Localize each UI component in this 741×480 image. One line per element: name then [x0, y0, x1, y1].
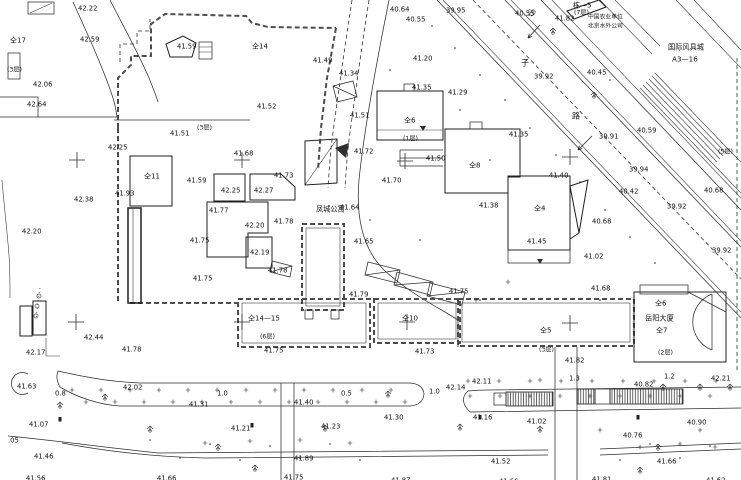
cross-street-east [555, 347, 577, 480]
boundary-point-icon [35, 304, 39, 308]
survey-grid-cross [562, 149, 578, 165]
elevation-label: 39.92 [534, 73, 553, 81]
building-number-label: 仝8 [469, 161, 480, 170]
road-tick [559, 379, 563, 383]
elevation-label: 40.59 [637, 127, 656, 135]
elevation-label: 42.27 [254, 187, 273, 195]
road-tick [466, 379, 470, 383]
elevation-label: 40.55 [406, 16, 425, 24]
parallelogram-building [305, 139, 337, 185]
boundary-point-icon [37, 294, 41, 298]
elevation-label: 41.78 [122, 346, 141, 354]
survey-grid-cross [562, 315, 578, 331]
width-label: 1.0 [429, 388, 440, 396]
road-tick [683, 379, 687, 383]
utility-marker-icon [59, 417, 62, 422]
elevation-label: 42.19 [250, 249, 269, 257]
elevation-label: 40.76 [623, 432, 642, 440]
elevation-label: 42.20 [245, 222, 264, 230]
flow-arrow-icon [528, 25, 540, 38]
road-tick [348, 441, 352, 445]
survey-dot [479, 74, 481, 76]
survey-grid-cross [397, 153, 413, 169]
floor-count-label: (6层) [260, 334, 275, 341]
sidewalk-east-bottom [463, 391, 741, 412]
survey-dot [431, 25, 433, 27]
elevation-label: 41.59 [187, 177, 206, 185]
survey-dot [555, 154, 557, 156]
building-number-label: 仝10 [402, 314, 418, 323]
building-number-label: 仝6 [404, 116, 416, 125]
building-number-label: 仝7 [656, 326, 667, 335]
road-tick [298, 438, 302, 442]
elevation-label: 41.45 [527, 238, 546, 246]
elevation-label: 41.66 [657, 458, 676, 466]
elevation-label: 40.42 [619, 188, 638, 196]
elevation-label: 41.78 [268, 267, 287, 275]
tree-icon [550, 28, 556, 35]
small-building-outline [20, 306, 32, 336]
elevation-label: 41.59 [177, 43, 196, 51]
road-tick [403, 400, 407, 404]
elevation-label: 41.75 [190, 237, 209, 245]
road-tick [498, 394, 502, 398]
elevation-label: 40.68 [592, 218, 611, 226]
place-name-label: 国际风具城 [668, 43, 704, 52]
elevation-label: 41.87 [391, 477, 410, 480]
elevation-label: 42.25 [108, 144, 127, 152]
floor-count-label: (2层) [658, 350, 673, 357]
survey-dot [269, 445, 271, 447]
place-name-label: A3—16 [672, 55, 698, 64]
road-tick [113, 400, 117, 404]
survey-dot [599, 299, 601, 301]
elevation-label: 40.68 [704, 187, 723, 195]
elevation-label: 41.52 [491, 458, 510, 466]
elevation-label: 41.40 [549, 172, 568, 180]
elevation-label: 42.25 [221, 187, 240, 195]
main-compound-building [302, 224, 344, 319]
elevation-label: 42.02 [123, 384, 142, 392]
place-name-label: 凤城公寓 [316, 205, 345, 214]
elevation-label: 42.17 [26, 349, 45, 357]
survey-dot [609, 79, 611, 81]
building-14-15-outline [238, 299, 370, 347]
road-tick [621, 379, 625, 383]
road-tick [497, 379, 501, 383]
ladder-symbol [199, 42, 212, 59]
road-tick [558, 394, 562, 398]
elevation-label: 41.35 [509, 131, 528, 139]
elevation-label: 41.50 [426, 155, 445, 163]
elevation-label: 41.40 [294, 399, 313, 407]
floor-count-label: (3层) [7, 67, 22, 74]
elevation-label: 41.77 [209, 207, 228, 215]
elevation-label: 42.11 [472, 378, 491, 386]
elevation-label: 41.56 [26, 475, 45, 480]
road-tick [638, 445, 642, 449]
tree-icon [385, 391, 391, 398]
elevation-label: 41.29 [448, 89, 467, 97]
survey-dot [529, 127, 531, 129]
cad-survey-map: 42.2242.5942.0642.6442.2542.3842.2041.93… [0, 0, 741, 480]
survey-dot [459, 109, 461, 111]
elevation-label: 41.82 [565, 357, 584, 365]
survey-dot [504, 99, 506, 101]
road-tick [248, 439, 252, 443]
building-number-label: 栋—5 [573, 1, 591, 10]
survey-dot [209, 443, 211, 445]
floor-count-label: (3层) [539, 347, 554, 354]
floor-count-label: (5层) [718, 149, 733, 156]
left-edge-structures [11, 288, 60, 395]
road-tick [698, 428, 702, 432]
road-tick [468, 394, 472, 398]
elevation-label: 40.82 [634, 381, 653, 389]
elevation-label: 41.75 [449, 288, 468, 296]
tree-icon [457, 424, 463, 431]
road-tick [345, 400, 349, 404]
road-name-char: 沙 [528, 9, 536, 18]
tree-icon [57, 402, 63, 409]
west-wing-outline [128, 208, 141, 303]
elevation-label: 39.91 [599, 133, 618, 141]
road-tick [389, 388, 393, 392]
elevation-label: 42.64 [27, 101, 46, 109]
road-tick [258, 400, 262, 404]
utility-marker-icon [637, 415, 640, 420]
parcel-lines-northwest [0, 0, 158, 298]
elevation-label: 41.65 [354, 238, 373, 246]
elevation-label: 41.23 [321, 423, 340, 431]
elevation-label: 40.64 [390, 6, 409, 14]
width-label: 0.5 [341, 390, 352, 398]
road-tick [157, 388, 161, 392]
elevation-label: 39.94 [629, 166, 648, 174]
survey-dot [709, 445, 711, 447]
elevation-label: 42.22 [78, 5, 97, 13]
building-7-yueyang-tower [634, 285, 726, 362]
survey-dot [179, 457, 181, 459]
elevation-label: 41.75 [193, 275, 212, 283]
building-8-outline [445, 129, 520, 193]
road-tick [316, 400, 320, 404]
utility-marker-icon [251, 423, 254, 428]
elevation-label: 40.90 [687, 419, 706, 427]
road-tick [708, 394, 712, 398]
survey-dot [579, 181, 581, 183]
elevation-label: 41.79 [349, 291, 368, 299]
buildings-south-row [238, 285, 726, 362]
place-name-label: 北京水外公司 [588, 22, 623, 30]
elevation-label: 41.68 [234, 150, 253, 158]
elevation-label: 42.38 [74, 196, 93, 204]
elevation-label: 41.49 [313, 57, 332, 65]
elevation-label: 40.45 [587, 69, 606, 77]
map-symbols [34, 25, 733, 474]
survey-dot [359, 459, 361, 461]
elevation-label: 41.52 [257, 103, 276, 111]
road-tick [99, 388, 103, 392]
elevation-label: 41.16 [473, 414, 492, 422]
elevation-label: 42.06 [33, 81, 52, 89]
road-tick [203, 441, 207, 445]
survey-dot [604, 209, 606, 211]
survey-dot [454, 47, 456, 49]
elevation-label: 41.78 [274, 218, 293, 226]
building-6-outline [377, 91, 443, 140]
elevation-label: 42.59 [80, 36, 99, 44]
elevation-label: 41.70 [382, 177, 401, 185]
road-tick [713, 445, 717, 449]
width-label: 1.2 [664, 373, 675, 381]
survey-dot [149, 439, 151, 441]
road-tick [142, 400, 146, 404]
building-number-label: 仝5 [540, 326, 551, 335]
elevation-label: 41.73 [274, 172, 293, 180]
elevation-label: 41.72 [354, 148, 373, 156]
tree-icon [102, 394, 108, 401]
road-tick [229, 400, 233, 404]
tree-icon [655, 444, 661, 451]
building-11-outline [130, 156, 172, 206]
building-number-label: 仝11 [144, 172, 160, 181]
elevation-label: 41.93 [115, 190, 134, 198]
elevation-label: 41.31 [189, 401, 208, 409]
elevation-label: 41.02 [527, 418, 546, 426]
elevation-label: 39.92 [712, 247, 731, 255]
sidewalk-island-west [57, 371, 424, 406]
elevation-label: 42.21 [711, 375, 730, 383]
survey-dot [679, 457, 681, 459]
elevation-label: 41.38 [479, 202, 498, 210]
elevation-label: 41.75 [284, 474, 303, 480]
survey-dot [619, 459, 621, 461]
flow-arrow-icon [578, 136, 592, 150]
curb-line-east [600, 443, 741, 455]
elevation-label: 41.35 [412, 84, 431, 92]
road-tick [287, 400, 291, 404]
road-tick [70, 388, 74, 392]
tree-icon [637, 467, 643, 474]
tree-icon [537, 426, 543, 433]
road-name-char: 路 [572, 111, 580, 121]
road-tick [331, 388, 335, 392]
tree-icon [252, 465, 258, 472]
survey-dot [629, 236, 631, 238]
survey-grid-cross [69, 152, 85, 168]
road-tick [538, 378, 542, 382]
road-name-char: 子 [521, 59, 529, 68]
elevation-label: 41.68 [591, 285, 610, 293]
survey-dot [389, 69, 391, 71]
road-tick [84, 400, 88, 404]
elevation-label: 41.21 [231, 425, 250, 433]
place-name-label: 中国农业单位 [588, 13, 623, 21]
elevation-label: 41.30 [384, 414, 403, 422]
elevation-label: 41.73 [415, 348, 434, 356]
elevation-label: 39.92 [667, 203, 686, 211]
elevation-label: 41.34 [339, 70, 358, 78]
elevation-label: 41.89 [294, 455, 313, 463]
curb-line [8, 436, 548, 453]
road-tick [598, 428, 602, 432]
elevation-label: 41.66 [157, 475, 176, 480]
road-tick [302, 388, 306, 392]
survey-dot [649, 443, 651, 445]
floor-count-label: (7层) [574, 10, 589, 17]
building-number-label: 仝14—15 [248, 314, 280, 323]
survey-grid-cross [68, 314, 84, 330]
place-name-label: 岳阳大厦 [645, 314, 674, 323]
elevation-label: 41.51 [350, 112, 369, 120]
road-tick [171, 400, 175, 404]
width-label: 1.0 [217, 390, 228, 398]
road-tick [273, 388, 277, 392]
elevation-label: 41.51 [170, 130, 189, 138]
hatched-wall-band [494, 389, 683, 406]
elevation-label: 39.95 [446, 7, 465, 15]
road-tick [590, 379, 594, 383]
survey-dot [329, 443, 331, 445]
floor-count-label: (3层) [197, 125, 212, 132]
survey-map-canvas: 42.2242.5942.0642.6442.2542.3842.2041.93… [0, 0, 741, 480]
elevation-label: 41.81 [592, 476, 611, 480]
building-number-label: 仝17 [10, 36, 26, 45]
building-5-outline [458, 299, 634, 346]
road-tick [528, 379, 532, 383]
survey-dot [369, 219, 371, 221]
elevation-label: 41.82 [555, 15, 574, 23]
survey-dot [479, 299, 481, 301]
elevation-label: 41.75 [264, 347, 283, 355]
map-labels: 42.2242.5942.0642.6442.2542.3842.2041.93… [7, 1, 733, 480]
width-label: 1.3 [569, 375, 580, 383]
survey-dot [419, 239, 421, 241]
road-tick [506, 280, 510, 284]
survey-dot [239, 459, 241, 461]
width-label: 0.8 [55, 390, 66, 398]
survey-dot [489, 159, 491, 161]
corner-lines-northeast [600, 0, 741, 68]
elevation-label: 41.20 [413, 55, 432, 63]
road-tick [186, 388, 190, 392]
road-tick [360, 388, 364, 392]
cross-street-west [281, 383, 294, 480]
tree-icon [147, 426, 153, 433]
elevation-label: 41.46 [34, 453, 53, 461]
elevation-label: 41.63 [17, 383, 36, 391]
building-number-label: 仝6 [655, 299, 667, 308]
elevation-label: 42.44 [84, 334, 103, 342]
survey-dot [654, 262, 656, 264]
elevation-label: 42.14 [446, 384, 465, 392]
building-number-label: 仝4 [534, 204, 546, 213]
tree-icon [215, 444, 221, 451]
elevation-label: 42.20 [22, 228, 41, 236]
road-tick [374, 400, 378, 404]
elevation-label: 41.62 [706, 477, 725, 480]
elevation-label: .05 [8, 437, 19, 445]
south-road-system [8, 347, 741, 480]
building-number-label: 仝14 [252, 42, 268, 51]
floor-count-label: (1层) [403, 136, 418, 143]
elevation-label: 41.02 [584, 253, 603, 261]
road-tick [244, 388, 248, 392]
elevation-label: 41.07 [29, 421, 48, 429]
